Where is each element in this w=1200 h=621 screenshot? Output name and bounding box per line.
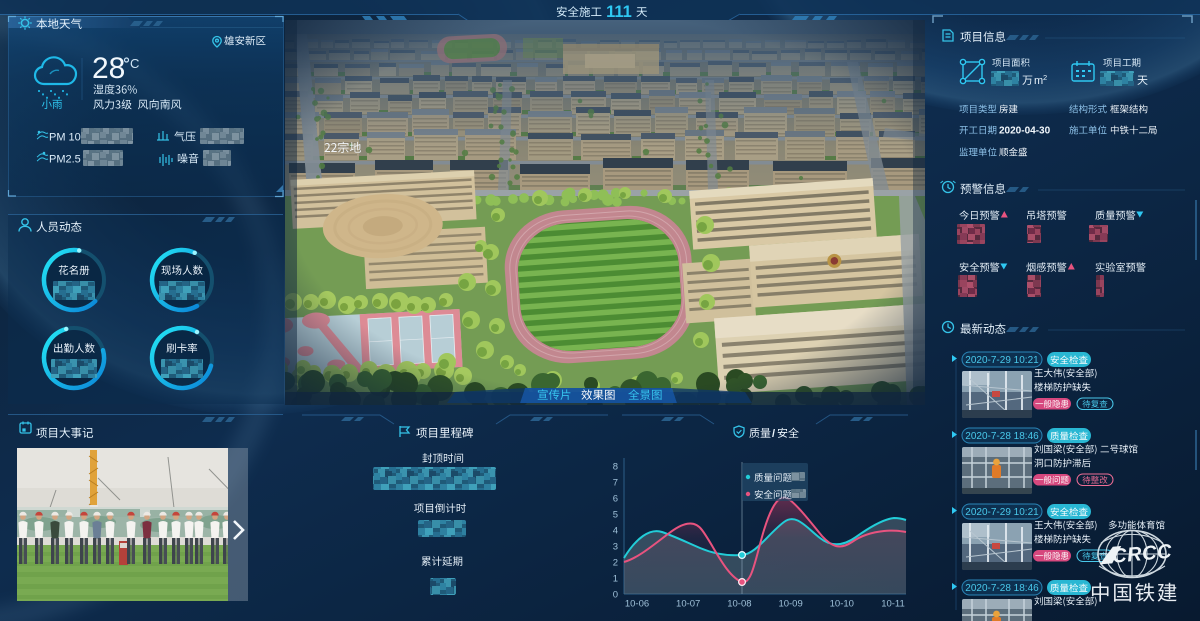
svg-text:2020-7-28 18:46: 2020-7-28 18:46 xyxy=(965,583,1039,594)
svg-text:C: C xyxy=(130,56,139,71)
svg-text:3: 3 xyxy=(613,542,618,553)
svg-text:111: 111 xyxy=(606,3,632,21)
svg-text:1: 1 xyxy=(613,574,618,585)
svg-text:0: 0 xyxy=(613,590,618,601)
svg-text:10-07: 10-07 xyxy=(676,599,700,610)
svg-text:10-11: 10-11 xyxy=(881,599,905,610)
svg-text:m: m xyxy=(1034,75,1043,87)
svg-text:8: 8 xyxy=(613,462,618,473)
svg-text:4: 4 xyxy=(613,526,618,537)
svg-text:10-08: 10-08 xyxy=(727,599,751,610)
svg-text:28: 28 xyxy=(92,52,125,85)
svg-text:2020-7-29 10:21: 2020-7-29 10:21 xyxy=(965,355,1039,366)
svg-text:6: 6 xyxy=(613,494,618,505)
svg-text:5: 5 xyxy=(613,510,618,521)
svg-text:2020-7-29 10:21: 2020-7-29 10:21 xyxy=(965,507,1039,518)
svg-text:2020-04-30: 2020-04-30 xyxy=(999,126,1051,137)
svg-text:10-09: 10-09 xyxy=(778,599,802,610)
svg-text:10-10: 10-10 xyxy=(830,599,854,610)
svg-text:2: 2 xyxy=(613,558,618,569)
svg-text:2020-7-28 18:46: 2020-7-28 18:46 xyxy=(965,431,1039,442)
svg-text:PM 10: PM 10 xyxy=(49,132,81,144)
svg-text:/: / xyxy=(772,428,775,440)
svg-text:10-06: 10-06 xyxy=(625,599,649,610)
svg-text:7: 7 xyxy=(613,478,618,489)
svg-text:2: 2 xyxy=(1043,73,1047,82)
svg-text:PM2.5: PM2.5 xyxy=(49,154,81,166)
